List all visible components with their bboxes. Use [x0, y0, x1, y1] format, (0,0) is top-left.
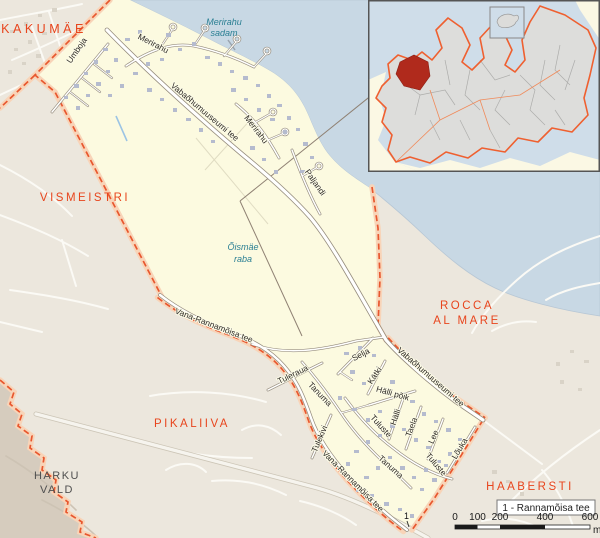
scale-tick: 600 — [582, 512, 599, 523]
water-label: raba — [234, 254, 252, 264]
area-label: PIKALIIVA — [154, 418, 230, 430]
scale-tick: 0 — [452, 512, 458, 523]
map-canvas: KAKUMÄEVISMEISTRIPIKALIIVAROCCAAL MAREHA… — [0, 0, 600, 538]
water-label: Õismäe — [227, 242, 258, 252]
scale-tick: 200 — [492, 512, 509, 523]
inset-locator-map — [368, 0, 600, 172]
area-label: HAABERSTI — [486, 481, 574, 493]
area-label: VISMEISTRI — [40, 192, 130, 204]
scale-tick: 100 — [469, 512, 486, 523]
water-label: Merirahu — [206, 17, 242, 27]
haabersti-district-map: KAKUMÄEVISMEISTRIPIKALIIVAROCCAAL MAREHA… — [0, 0, 600, 538]
area-label: VALD — [40, 484, 74, 496]
marker-label: 1 — [404, 511, 409, 521]
scale-tick: 400 — [537, 512, 554, 523]
area-label: HARKU — [34, 470, 80, 482]
area-label: KAKUMÄE — [1, 22, 87, 36]
area-label: ROCCA — [440, 300, 494, 312]
scale-unit: m — [593, 525, 600, 536]
water-label: sadam — [210, 28, 238, 38]
area-label: AL MARE — [433, 315, 501, 327]
